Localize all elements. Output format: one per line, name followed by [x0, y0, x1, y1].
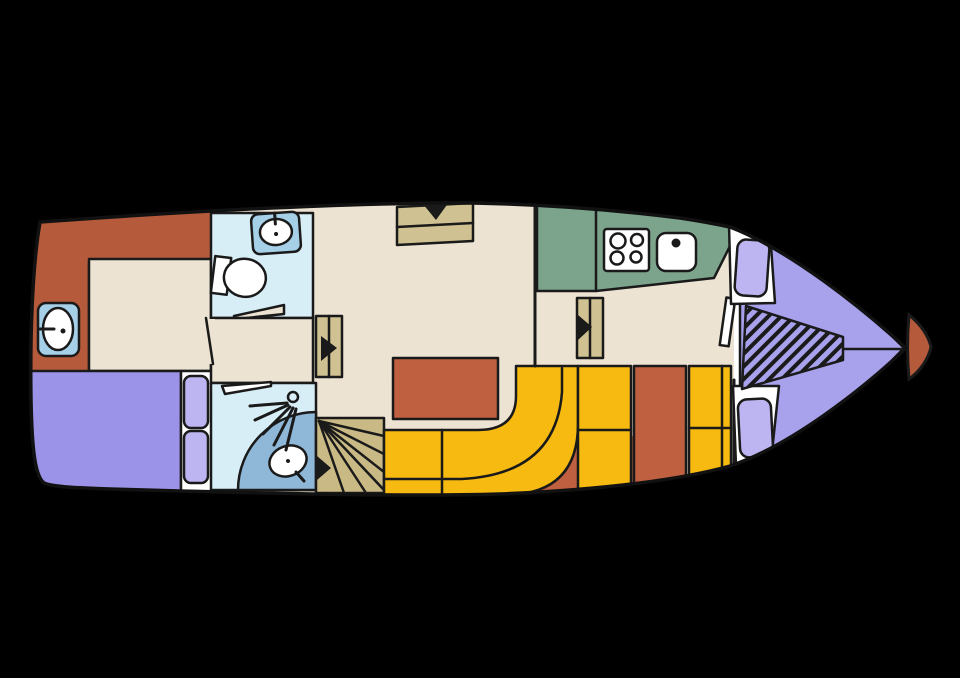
aft-single-berth	[89, 259, 211, 371]
aft-pillow-top	[184, 376, 208, 428]
boat-floor-plan	[0, 0, 960, 678]
mid-cabinet	[211, 318, 313, 383]
deck-plan-svg	[0, 0, 960, 678]
washbasin-faucet	[275, 213, 276, 224]
v-berth-pillow-top	[734, 239, 770, 297]
galley-sink-faucet	[672, 239, 681, 248]
shower-head-icon	[288, 392, 298, 402]
aft-sink-drain	[61, 329, 66, 334]
saloon-table	[393, 358, 498, 419]
aft-double-bed	[28, 371, 181, 497]
dinette-table	[634, 366, 686, 492]
aft-pillow-bottom	[184, 431, 208, 483]
bow-stem-tip	[908, 315, 932, 379]
